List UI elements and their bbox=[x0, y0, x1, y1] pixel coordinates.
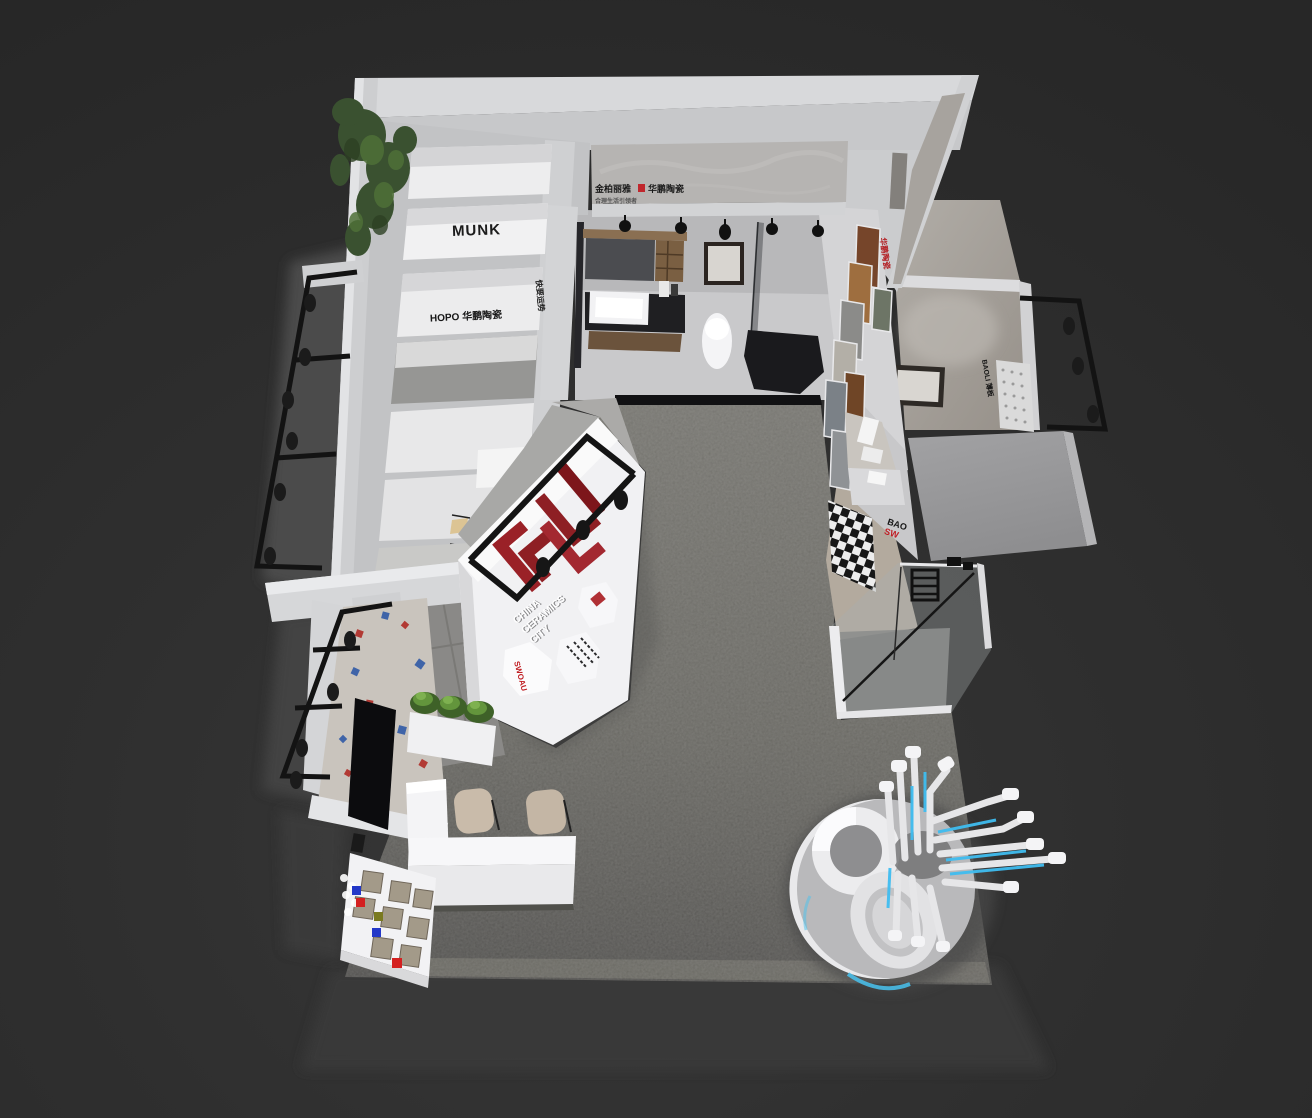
svg-text:华鹏陶瓷: 华鹏陶瓷 bbox=[648, 183, 684, 194]
svg-text:金柏丽雅: 金柏丽雅 bbox=[594, 183, 631, 194]
svg-text:MUNK: MUNK bbox=[452, 221, 502, 240]
